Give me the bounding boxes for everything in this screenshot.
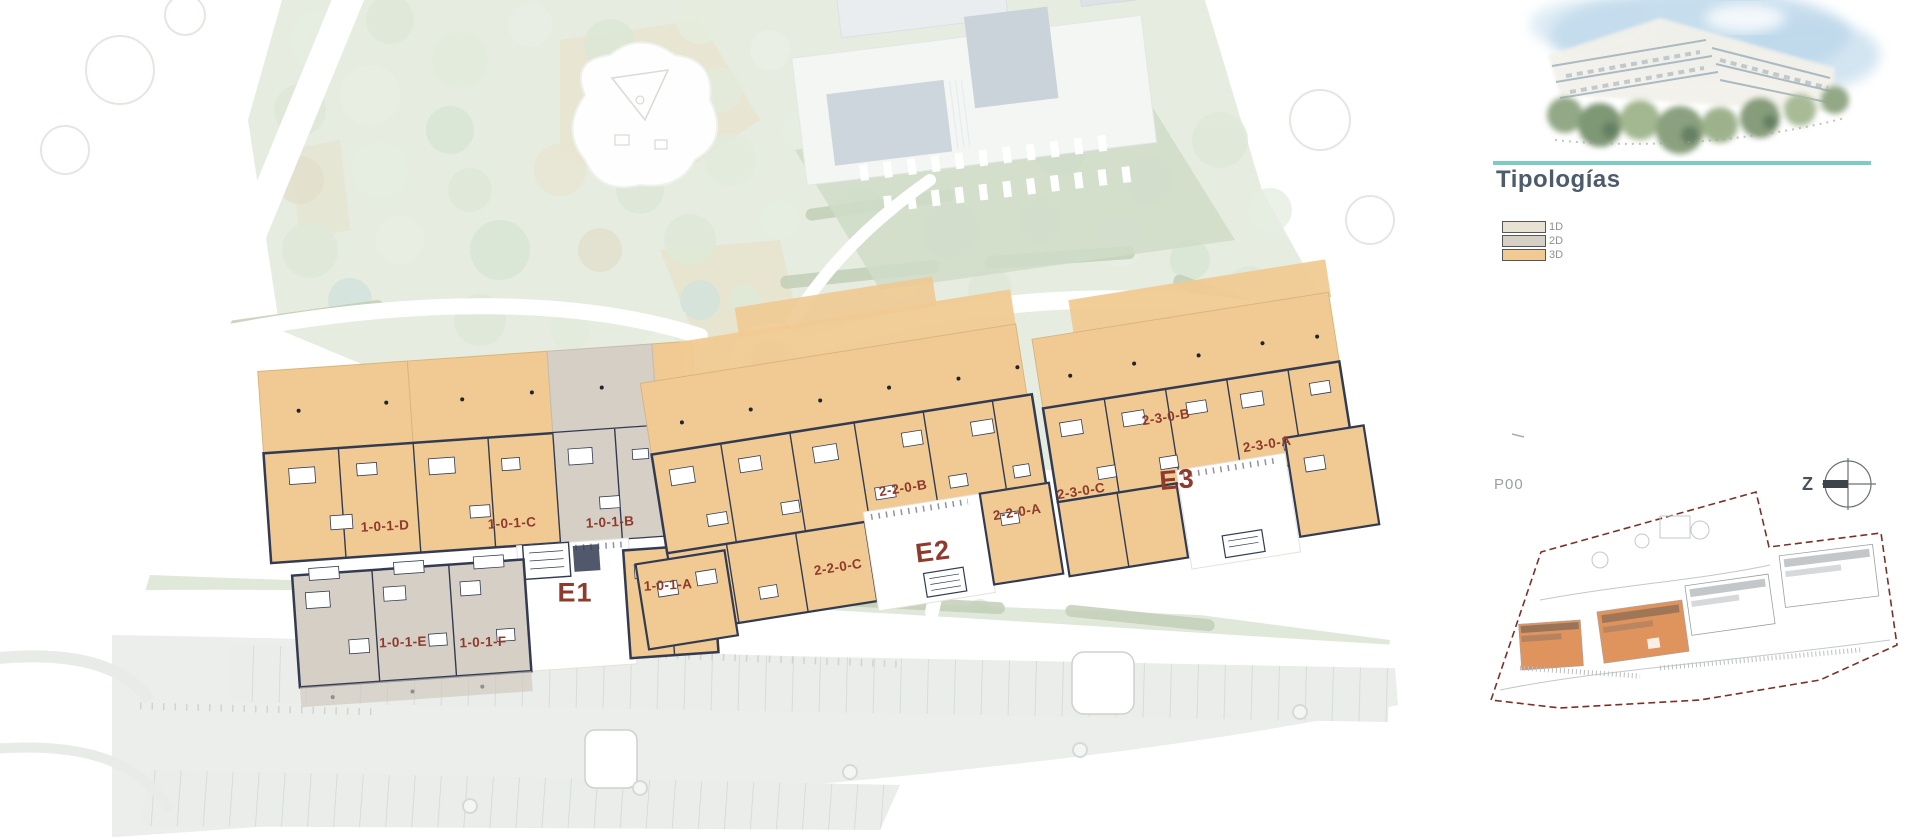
swatch-2d	[1502, 235, 1546, 247]
swatch-3d	[1502, 249, 1546, 261]
pool-lap	[964, 7, 1059, 109]
building-e3[interactable]	[1027, 258, 1382, 589]
swatch-1d	[1502, 221, 1546, 233]
legend-title: Tipologías	[1496, 166, 1621, 194]
typology-legend: 1D 2D 3D	[1502, 220, 1563, 262]
unit-label-1-0-1-b[interactable]: 1-0-1-B	[585, 513, 634, 531]
unit-label-1-0-1-d[interactable]: 1-0-1-D	[360, 517, 409, 535]
building-rendering-artwork	[1440, 0, 1920, 158]
site-plan-drawing	[0, 0, 1450, 837]
unit-label-1-0-1-c[interactable]: 1-0-1-C	[487, 514, 536, 532]
unit-label-1-0-1-e[interactable]: 1-0-1-E	[379, 634, 427, 651]
legend-item-1d: 1D	[1502, 220, 1563, 234]
parking-ramp	[1072, 652, 1134, 714]
unit-label-1-0-1-f[interactable]: 1-0-1-F	[459, 634, 507, 651]
block-label-e2[interactable]: E2	[914, 534, 953, 569]
parking-area	[0, 635, 1398, 837]
unit-label-1-0-1-a[interactable]: 1-0-1-A	[643, 576, 692, 594]
legend-item-3d: 3D	[1502, 248, 1563, 262]
block-label-e3[interactable]: E3	[1158, 463, 1196, 497]
site-plan-page: Tipologías 1D 2D 3D P00 Z	[0, 0, 1920, 837]
pool-main	[826, 80, 952, 166]
parking-ramp	[585, 730, 637, 788]
legend-item-2d: 2D	[1502, 234, 1563, 248]
legend-divider	[1493, 161, 1871, 165]
block-label-e1[interactable]: E1	[557, 578, 592, 609]
overview-minimap	[1480, 430, 1920, 720]
